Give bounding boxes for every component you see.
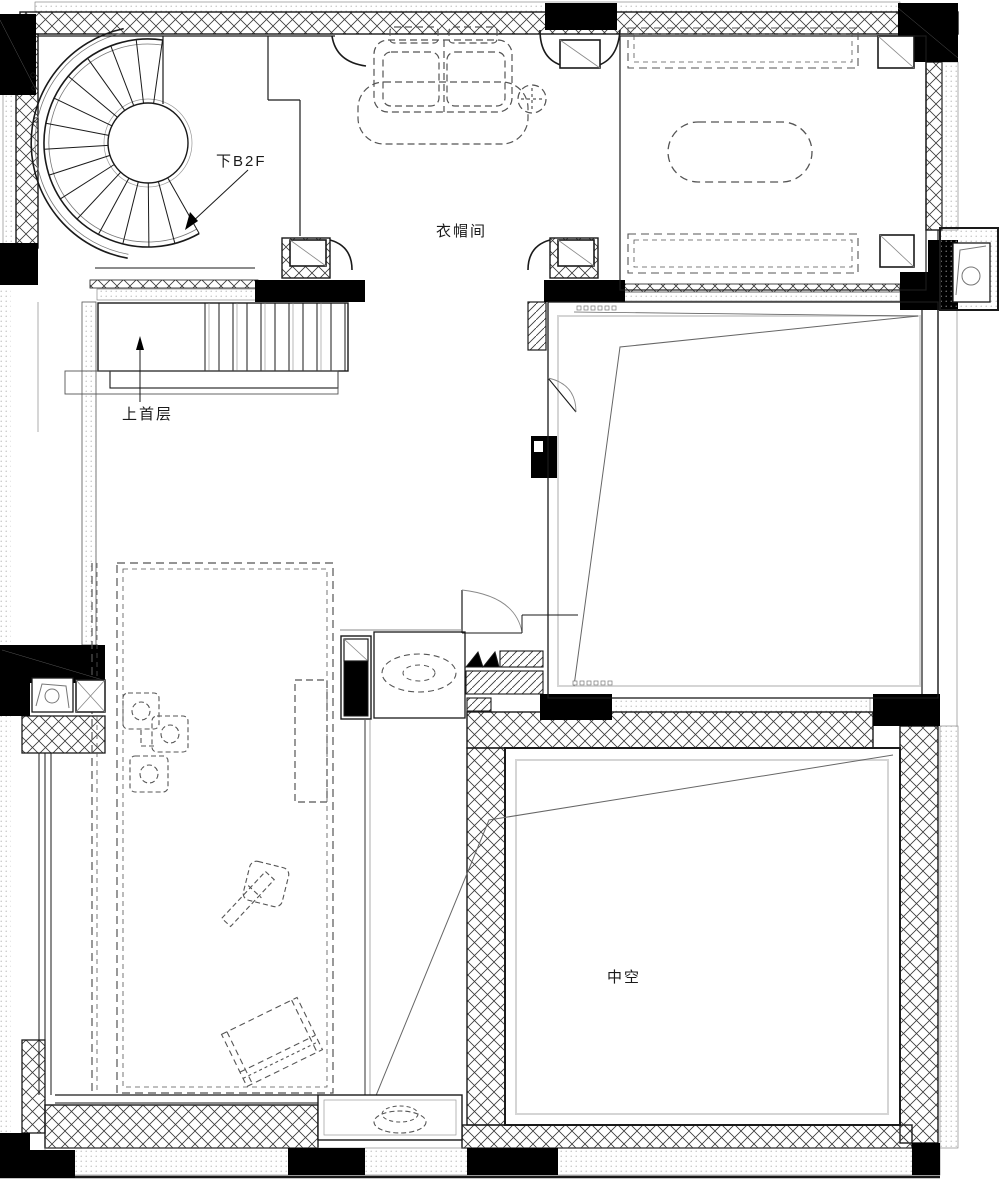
bottom-left-room — [92, 563, 333, 1093]
floorplan-drawing — [0, 0, 1000, 1181]
exterior-unit-box — [940, 228, 998, 310]
exterior-walls — [0, 2, 958, 1177]
stair-down-leader-arrow — [185, 170, 248, 230]
stair-up-arrow — [136, 336, 144, 402]
middle-right-room — [548, 302, 938, 698]
straight-staircase — [65, 303, 348, 394]
label-void-space: 中空 — [607, 966, 641, 987]
label-cloakroom: 衣帽间 — [436, 220, 487, 241]
cloakroom-furniture — [358, 27, 546, 144]
label-stair-down-b2f: 下B2F — [216, 150, 267, 171]
top-right-room — [620, 28, 926, 290]
void-room — [375, 748, 900, 1125]
floor-plan-page: 下B2F 衣帽间 上首层 中空 — [0, 0, 1000, 1181]
spiral-staircase — [31, 29, 335, 268]
left-fixture-block — [32, 678, 105, 712]
label-stair-up-first-floor: 上首层 — [122, 403, 173, 424]
planter-niche — [318, 1095, 462, 1140]
